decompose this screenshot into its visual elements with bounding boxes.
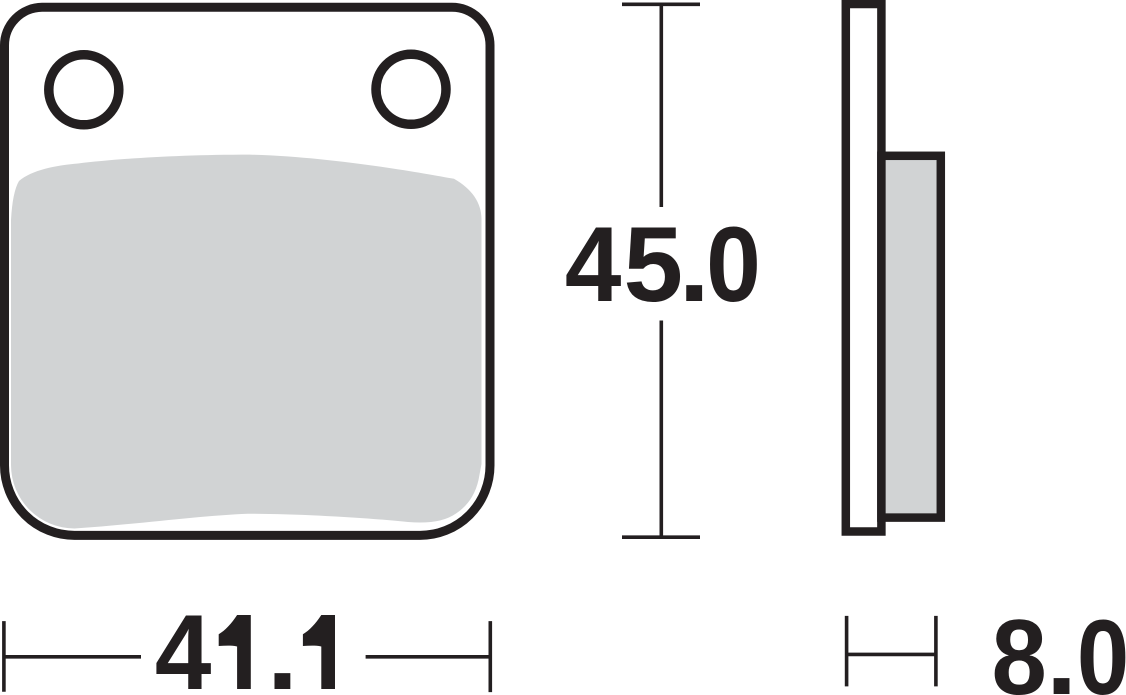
svg-text:0: 0 — [1077, 598, 1126, 695]
svg-text:4: 4 — [155, 594, 212, 695]
svg-text:8: 8 — [992, 597, 1047, 695]
svg-text:.: . — [679, 205, 710, 324]
svg-text:.: . — [1046, 598, 1077, 695]
svg-text:4: 4 — [565, 206, 622, 325]
svg-text:5: 5 — [624, 204, 684, 324]
svg-text:0: 0 — [706, 204, 761, 324]
svg-text:.: . — [267, 593, 298, 695]
